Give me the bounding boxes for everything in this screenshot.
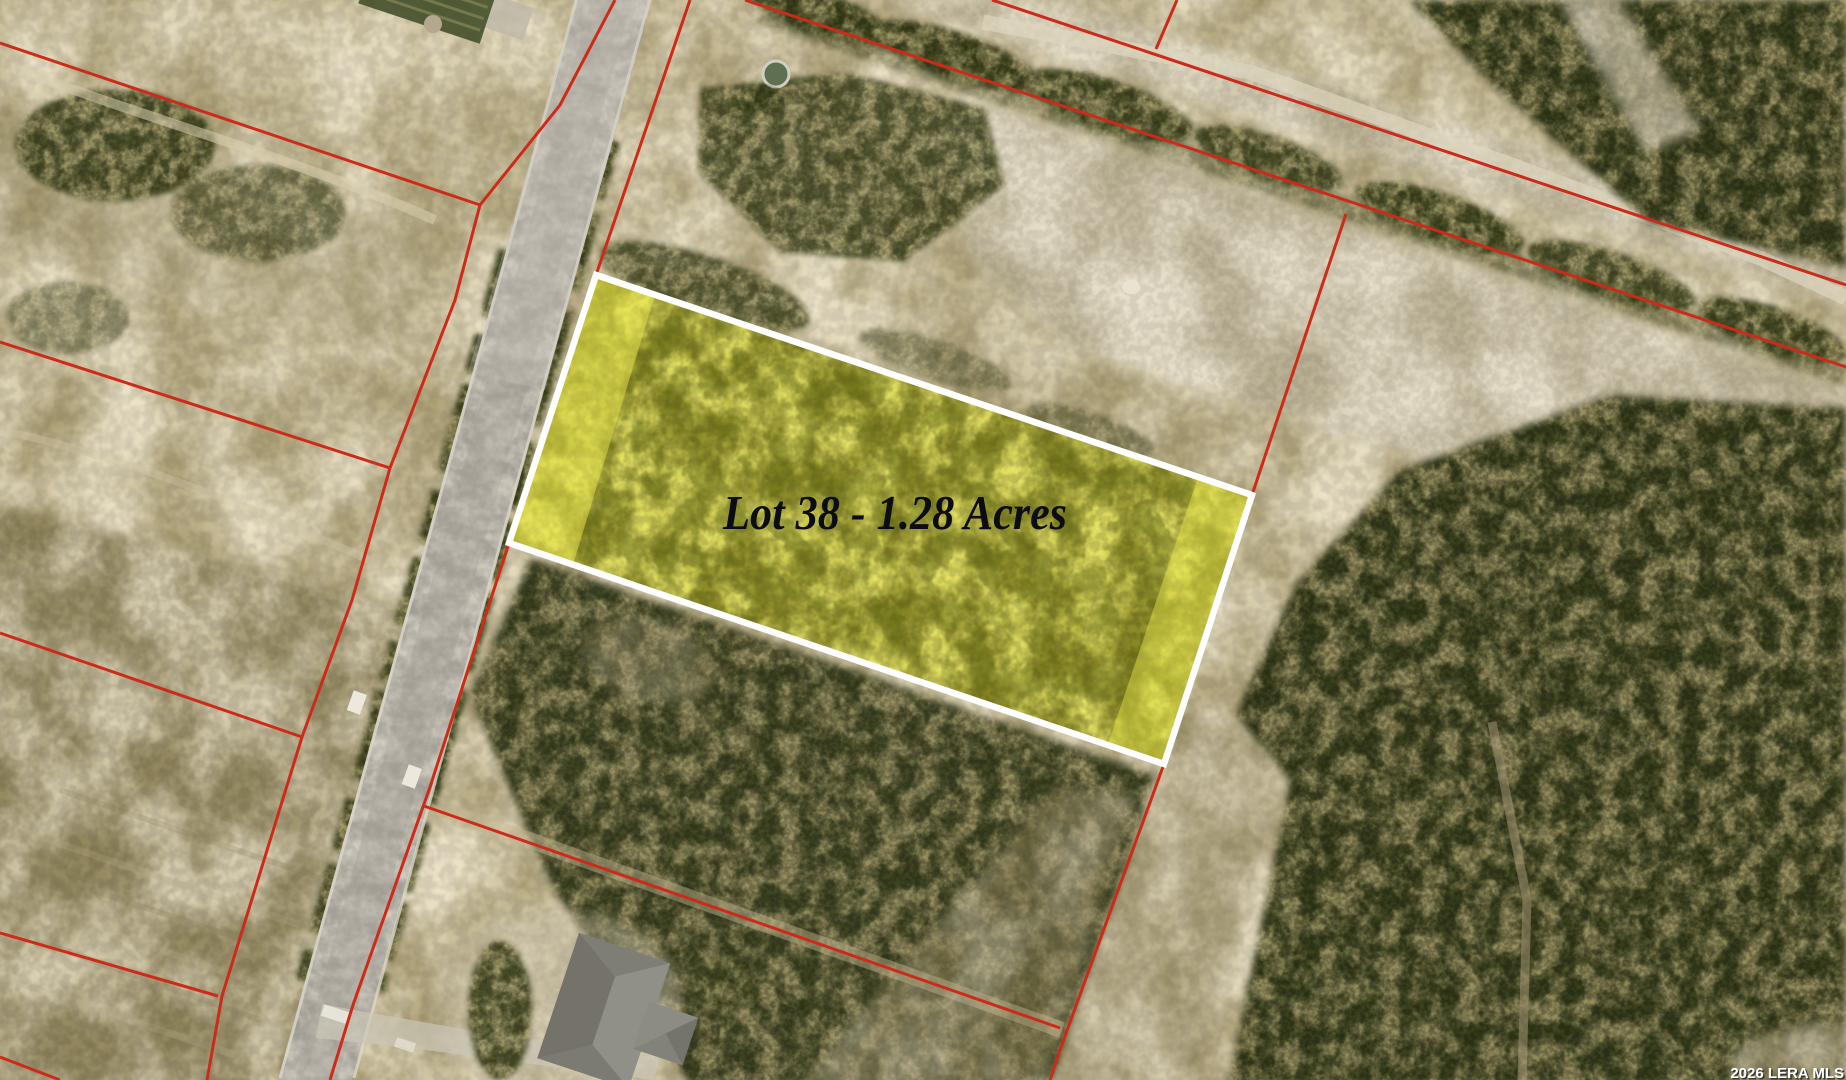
svg-text:2026 LERA MLS: 2026 LERA MLS [1730,1065,1844,1080]
svg-text:Lot 38 - 1.28 Acres: Lot 38 - 1.28 Acres [722,485,1067,540]
